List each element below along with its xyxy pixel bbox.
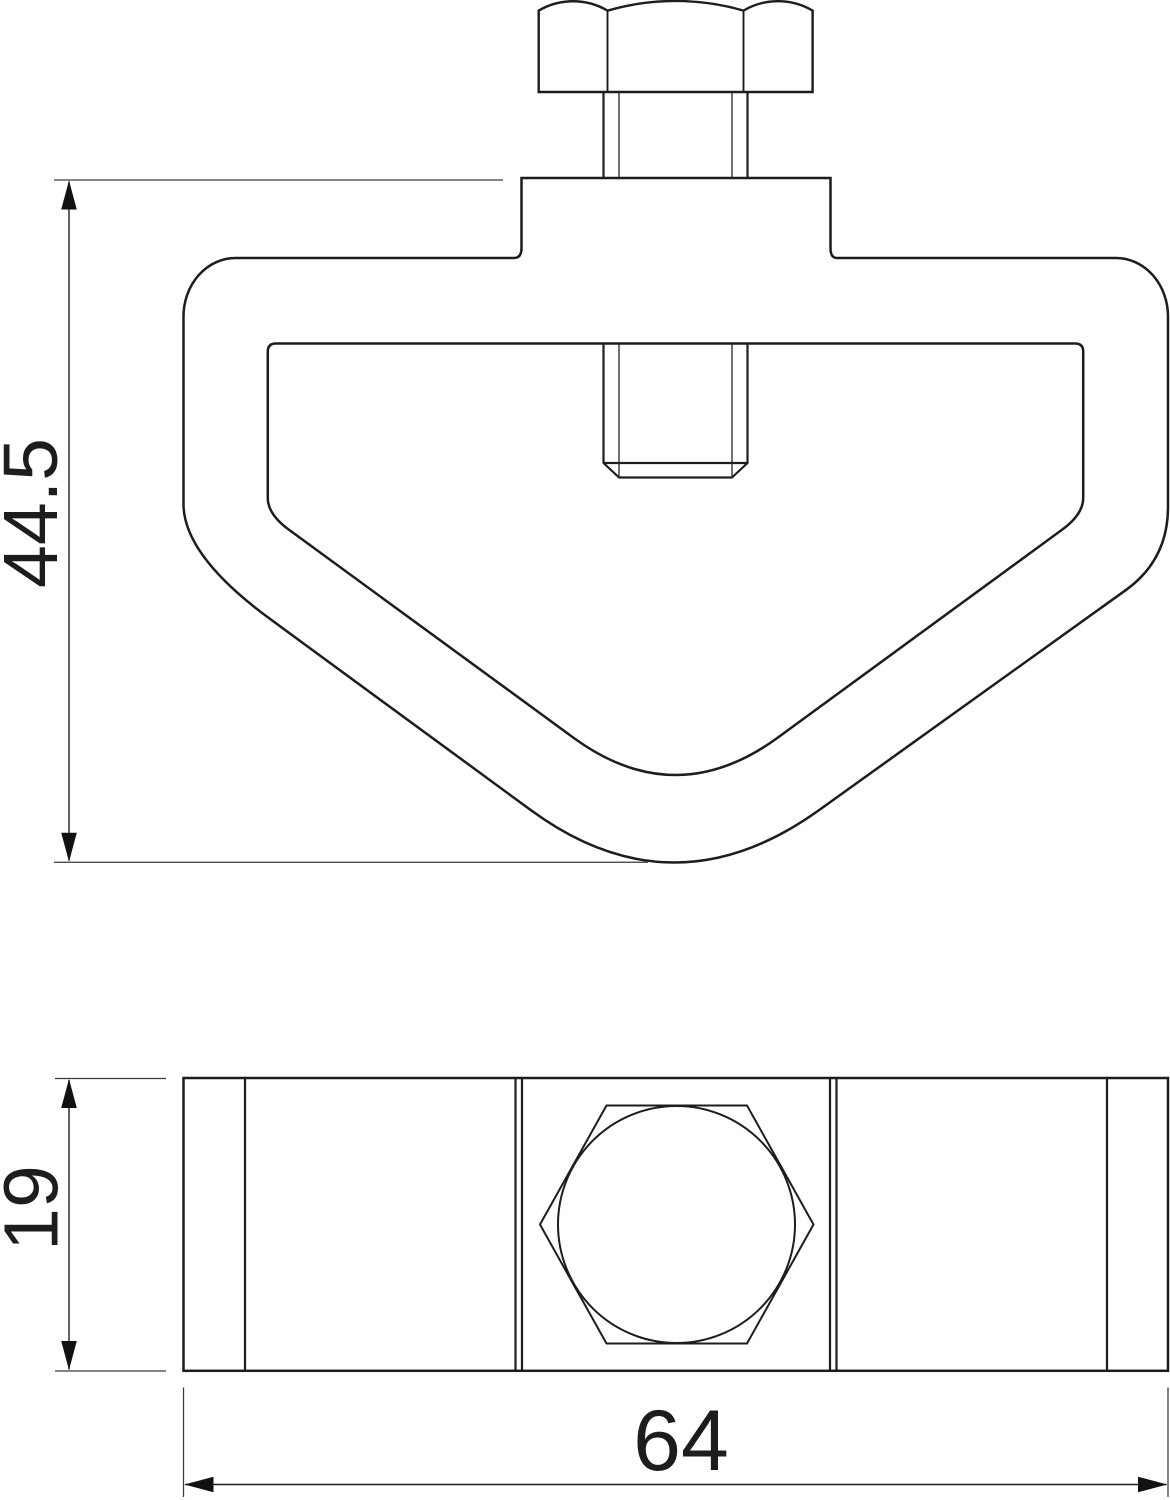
svg-text:64: 64 [633,1393,729,1489]
svg-text:19: 19 [0,1165,75,1251]
svg-text:44.5: 44.5 [0,438,74,588]
